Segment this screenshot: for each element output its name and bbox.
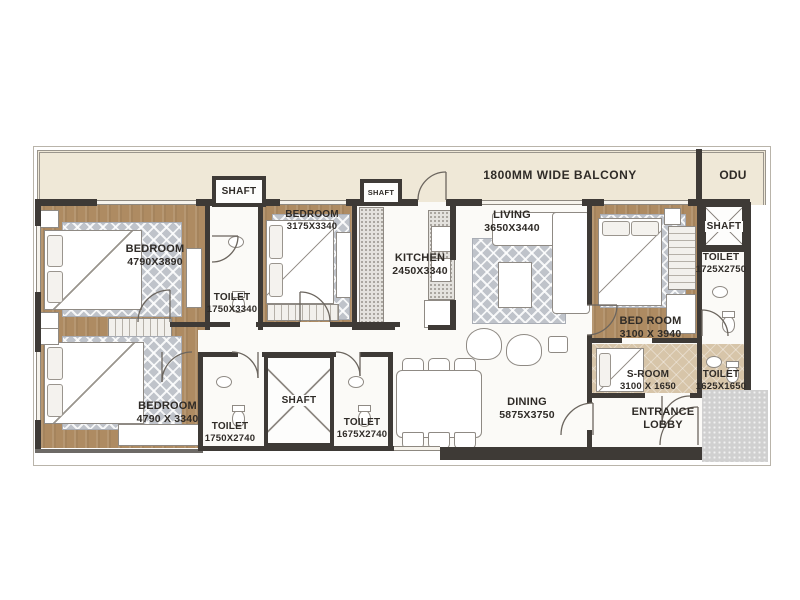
room-dining-label: DINING 5875X3750 [467, 396, 587, 421]
entrance-lobby-label: ENTRANCE LOBBY [608, 406, 718, 432]
room-name: TOILET [201, 292, 263, 304]
room-toilet-1-label: TOILET 1750X3340 [201, 292, 263, 315]
room-dims: 1750X2740 [198, 433, 262, 444]
room-name: BEDROOM [90, 243, 220, 256]
room-living-label: LIVING 3650X3440 [462, 209, 562, 234]
room-bedroom-2-label: BEDROOM 3175X3340 [258, 209, 366, 232]
odu-label-text: ODU [719, 168, 746, 182]
room-dims: 3175X3340 [258, 221, 366, 232]
room-bedroom-1-label: BEDROOM 4790X3890 [90, 243, 220, 268]
door-arc [138, 290, 170, 322]
room-toilet-5-label: TOILET 1625X1650 [688, 369, 754, 392]
room-name: TOILET [690, 252, 752, 264]
room-toilet-4-label: TOILET 1675X2740 [330, 417, 394, 440]
odu-label: ODU [702, 168, 764, 182]
room-toilet-2-label: TOILET 1725X2750 [690, 252, 752, 275]
room-name: KITCHEN [370, 252, 470, 265]
room-dims: 1750X3340 [201, 304, 263, 315]
door-arc [702, 310, 728, 336]
room-name: BEDROOM [105, 400, 230, 413]
room-dims: 3100 X 3940 [598, 328, 703, 340]
room-dims: 5875X3750 [467, 409, 587, 421]
room-bedroom-3-label: BED ROOM 3100 X 3940 [598, 315, 703, 340]
floor-plan: SHAFT SHAFT SHAFT SHAFT 1800MM WIDE BALC… [0, 0, 800, 600]
room-toilet-3-label: TOILET 1750X2740 [198, 421, 262, 444]
room-dims: 4790X3890 [90, 256, 220, 268]
room-name: LOBBY [608, 419, 718, 432]
room-dims: 3650X3440 [462, 222, 562, 234]
room-dims: 1725X2750 [690, 264, 752, 275]
room-name: LIVING [462, 209, 562, 222]
door-arc [232, 352, 258, 378]
room-dims: 1675X2740 [330, 429, 394, 440]
room-name: TOILET [688, 369, 754, 381]
room-kitchen-label: KITCHEN 2450X3340 [370, 252, 470, 277]
door-arc [300, 292, 330, 322]
balcony-label: 1800MM WIDE BALCONY [440, 168, 680, 182]
room-name: BED ROOM [598, 315, 703, 328]
door-overlay [0, 0, 800, 600]
balcony-label-text: 1800MM WIDE BALCONY [483, 168, 637, 182]
room-name: BEDROOM [258, 209, 366, 221]
door-arc [162, 352, 192, 382]
door-arc [336, 352, 360, 376]
room-dims: 1625X1650 [688, 381, 754, 392]
room-name: TOILET [330, 417, 394, 429]
room-name: TOILET [198, 421, 262, 433]
room-dims: 2450X3340 [370, 265, 470, 277]
room-name: ENTRANCE [608, 406, 718, 419]
room-name: DINING [467, 396, 587, 409]
